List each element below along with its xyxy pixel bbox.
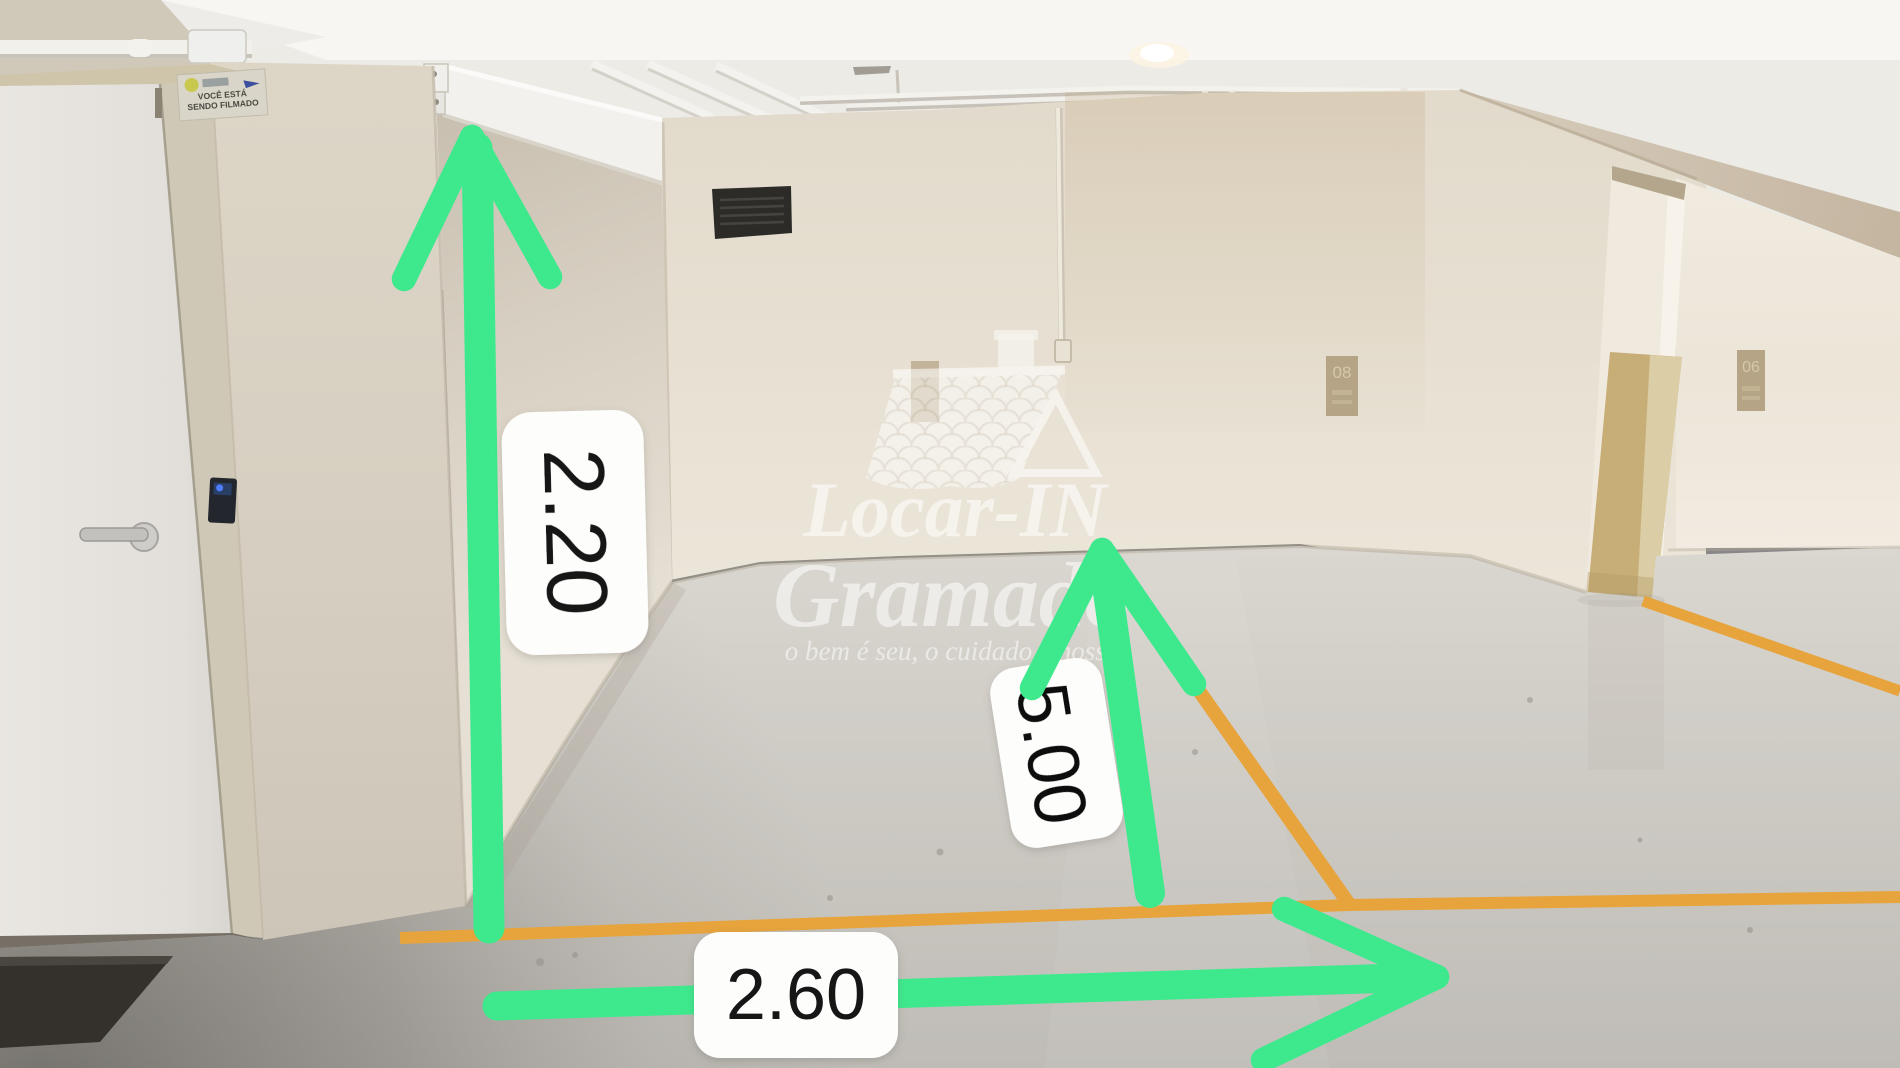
svg-text:08: 08 xyxy=(1333,363,1352,382)
svg-text:Locar-IN: Locar-IN xyxy=(802,466,1109,553)
svg-text:2.60: 2.60 xyxy=(726,955,866,1035)
svg-text:2.20: 2.20 xyxy=(525,447,625,617)
svg-text:06: 06 xyxy=(1742,359,1760,376)
